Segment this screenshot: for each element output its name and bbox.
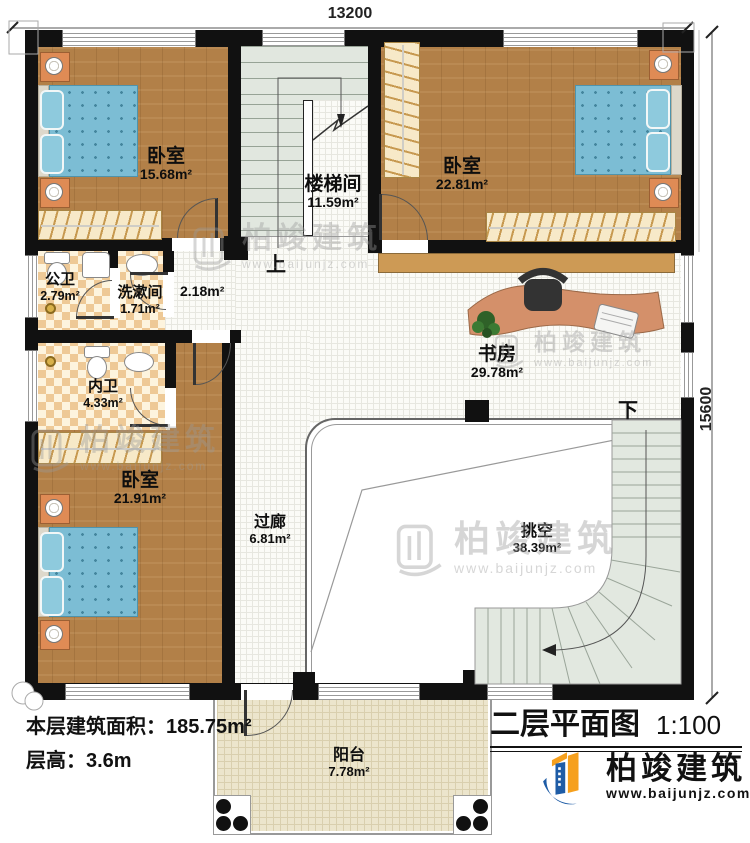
watermark-name: 柏竣建筑 [454, 521, 618, 557]
window [25, 350, 38, 422]
room-area: 1.71m² [117, 302, 162, 316]
wall-corridor-left [222, 330, 235, 700]
floor-corridor [222, 330, 310, 684]
window [318, 684, 420, 700]
nightstand-lamp [40, 494, 70, 524]
nightstand-lamp [40, 178, 70, 208]
drain-symbol [45, 356, 56, 367]
room-name: 公卫 [40, 272, 80, 289]
wardrobe [38, 210, 162, 240]
window [62, 30, 196, 47]
nightstand-lamp [40, 52, 70, 82]
room-area: 11.59m² [304, 195, 361, 211]
watermark-name: 柏竣建筑 [242, 224, 382, 254]
watermark: 柏竣建筑 www.baijunjz.com [190, 222, 382, 272]
column-icon [233, 816, 248, 831]
room-area: 7.78m² [328, 765, 369, 780]
door-leaf [76, 316, 114, 319]
floor-height-label: 层高： [26, 750, 86, 772]
stairs-down-label: 下 [618, 394, 638, 423]
nightstand-lamp [649, 178, 679, 208]
column-icon [473, 799, 488, 814]
room-label-washroom: 洗漱间 1.71m² [117, 285, 162, 316]
room-label-corridor: 过廊 6.81m² [249, 514, 290, 546]
room-label-bedroom-tr: 卧室 22.81m² [436, 156, 488, 193]
page-title: 二层平面图 [490, 699, 640, 743]
stairs-up-treads [241, 104, 305, 236]
window [681, 352, 694, 398]
watermark-url: www.baijunjz.com [242, 257, 382, 271]
window [681, 255, 694, 323]
watermark-logo-icon [28, 424, 72, 474]
wall-stairwell-left [228, 30, 241, 236]
watermark: 柏竣建筑 www.baijunjz.com [392, 518, 618, 578]
floor-stats: 本层建筑面积：185.75m² 层高：3.6m [26, 710, 252, 778]
window [25, 255, 38, 318]
stairs-up-cut [313, 100, 368, 236]
stairs-up-treads [241, 46, 368, 104]
pillow [40, 134, 64, 174]
room-area: 21.91m² [114, 491, 166, 507]
pillow [40, 576, 64, 616]
room-name: 洗漱间 [117, 285, 162, 302]
drawing-scale: 1:100 [656, 710, 721, 741]
pillow [646, 132, 670, 172]
bed-headboard [671, 85, 682, 175]
floor-height-value: 3.6m [86, 750, 132, 772]
room-name: 过廊 [249, 514, 290, 532]
watermark-logo-icon [392, 518, 446, 578]
column-icon [216, 799, 231, 814]
watermark: 柏竣建筑 www.baijunjz.com [492, 330, 653, 370]
brand-logo-icon [536, 746, 598, 808]
room-area: 6.81m² [249, 532, 290, 547]
floor-area-label: 本层建筑面积： [26, 716, 166, 738]
room-label-private-bath: 内卫 4.33m² [83, 379, 123, 410]
room-area: 22.81m² [436, 177, 488, 193]
wall-pillar [293, 672, 315, 684]
column-icon [216, 816, 231, 831]
brand-name: 柏竣建筑 [606, 753, 750, 784]
room-area: 2.79m² [40, 289, 80, 303]
wall-pillar [463, 670, 487, 684]
room-name: 阳台 [328, 747, 369, 765]
room-name: 卧室 [436, 156, 488, 177]
washing-machine-symbol [82, 252, 110, 278]
window [262, 30, 345, 47]
column-icon [473, 816, 488, 831]
room-name: 卧室 [140, 146, 192, 167]
title-block: 二层平面图 1:100 [490, 699, 742, 752]
window [65, 684, 190, 700]
wardrobe [384, 42, 420, 178]
watermark-name: 柏竣建筑 [534, 331, 653, 354]
room-name: 内卫 [83, 379, 123, 396]
door-gap-bedroom-bl [192, 330, 230, 343]
room-label-hall-area: 2.18m² [180, 283, 224, 299]
room-name: 楼梯间 [304, 174, 361, 195]
pillow [40, 90, 64, 130]
drain-symbol [45, 303, 56, 314]
watermark-logo-icon [190, 222, 234, 272]
room-label-bedroom-tl: 卧室 15.68m² [140, 146, 192, 183]
column-icon [456, 816, 471, 831]
dimension-height: 15600 [698, 374, 716, 444]
nightstand-lamp [40, 620, 70, 650]
watermark: 柏竣建筑 www.baijunjz.com [28, 424, 220, 474]
wardrobe [486, 212, 676, 242]
stairs-spine [303, 100, 313, 236]
watermark-url: www.baijunjz.com [454, 560, 618, 576]
watermark-url: www.baijunjz.com [80, 459, 220, 473]
wall-private-bath-right [165, 343, 176, 390]
brand-website: www.baijunjz.com [606, 785, 750, 801]
pillow [646, 89, 670, 129]
room-label-bedroom-bl: 卧室 21.91m² [114, 470, 166, 507]
door-gap-bedroom-tr [382, 240, 428, 253]
door-leaf [130, 272, 168, 275]
nightstand-lamp [649, 50, 679, 80]
toilet-symbol [87, 356, 107, 379]
room-label-balcony: 阳台 7.78m² [328, 747, 369, 779]
floor-area-line: 本层建筑面积：185.75m² [26, 710, 252, 744]
pillow [40, 532, 64, 572]
window [503, 30, 638, 47]
floor-height-line: 层高：3.6m [26, 744, 252, 778]
watermark-name: 柏竣建筑 [80, 426, 220, 456]
room-area: 15.68m² [140, 167, 192, 183]
watermark-url: www.baijunjz.com [534, 357, 653, 369]
wall-pillar [465, 400, 489, 422]
window [487, 684, 553, 700]
brand-logo: 柏竣建筑 www.baijunjz.com [536, 746, 750, 808]
wall-pillar [553, 672, 573, 684]
room-area: 4.33m² [83, 396, 123, 410]
sink-symbol [124, 352, 154, 372]
floor-area-value: 185.75m² [166, 716, 252, 738]
watermark-logo-icon [492, 330, 526, 370]
dimension-width: 13200 [310, 5, 390, 23]
floor-plan: 卧室 15.68m² 楼梯间 11.59m² 卧室 22.81m² 公卫 2.7… [0, 0, 750, 843]
cabinet-counter [378, 253, 675, 273]
room-label-stairwell: 楼梯间 11.59m² [304, 174, 361, 211]
room-label-public-bath: 公卫 2.79m² [40, 272, 80, 303]
